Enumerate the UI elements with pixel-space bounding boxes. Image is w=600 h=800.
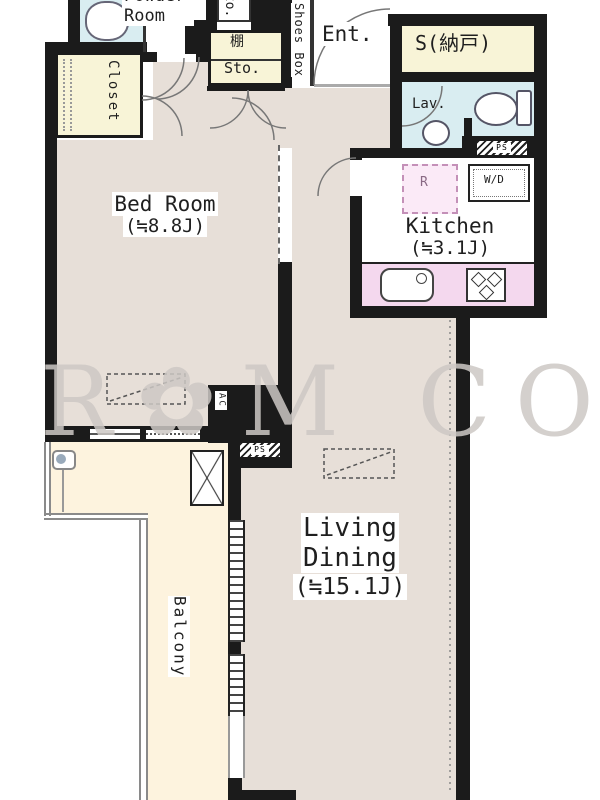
entrance-hall-floor	[230, 88, 390, 148]
washer-dryer-label: W/D	[482, 174, 506, 187]
living-label: Living	[301, 513, 399, 543]
window	[90, 429, 140, 439]
balcony-label: Balcony	[168, 596, 190, 677]
toilet-tank	[516, 90, 532, 126]
wall	[143, 52, 157, 62]
kitchen-label-block: Kitchen (≒3.1J)	[365, 214, 535, 260]
sliding-partition	[278, 145, 280, 264]
washbasin	[422, 120, 450, 146]
wall	[388, 14, 546, 26]
bedroom-label: Bed Room	[112, 192, 217, 216]
balcony-railing	[139, 518, 141, 800]
wall	[398, 72, 534, 82]
entrance-step-line	[314, 84, 390, 87]
powder-room-label: Powder Room	[122, 0, 194, 26]
balcony-railing	[49, 442, 51, 516]
wall	[350, 148, 470, 158]
entrance-label: Ent.	[320, 22, 375, 46]
storage-top-label: Sto.	[219, 0, 238, 17]
balcony-railing	[44, 518, 148, 520]
wall	[456, 312, 470, 800]
stove	[466, 268, 506, 302]
toilet-bowl	[474, 92, 518, 126]
living-floor-upper	[292, 312, 456, 444]
wall	[350, 304, 547, 318]
wall	[45, 426, 235, 442]
storage-label: Sto.	[222, 60, 262, 77]
bedroom-size: (≒8.8J)	[123, 215, 207, 237]
wall	[68, 0, 80, 48]
refrigerator-box	[402, 164, 458, 214]
corridor-floor	[292, 148, 350, 314]
sliding-window	[228, 520, 245, 642]
shelf-label: 棚	[228, 34, 246, 50]
pipe-space-upper-label: PS	[493, 143, 511, 153]
balcony-railing	[146, 518, 148, 800]
floorplan: PS PS AC Powder Room Sto. Closet 棚 St	[0, 0, 600, 800]
balcony-railing	[44, 442, 46, 516]
closet-box	[55, 52, 143, 138]
sliding-window	[228, 654, 245, 716]
shoes-box-label: Shoes Box	[291, 3, 305, 77]
storage-box	[208, 30, 284, 86]
lavatory-label: Lav.	[410, 96, 448, 112]
air-conditioner-label: AC	[215, 391, 227, 410]
wall	[390, 14, 402, 158]
pipe-space-lower-label: PS	[251, 445, 269, 455]
wall	[350, 148, 362, 160]
sliding-window	[228, 716, 245, 778]
wall	[278, 262, 292, 387]
bedroom-label-block: Bed Room (≒8.8J)	[75, 192, 255, 238]
dining-label: Dining	[301, 543, 399, 573]
living-dining-label-block: Living Dining (≒15.1J)	[255, 514, 445, 600]
service-room-label: S(納戸)	[413, 32, 493, 55]
kitchen-label: Kitchen	[404, 214, 497, 238]
balcony-faucet	[52, 450, 76, 470]
kitchen-sink	[380, 268, 434, 302]
pipe-space-upper: PS	[477, 141, 527, 155]
wall	[310, 0, 314, 86]
kitchen-size: (≒3.1J)	[408, 237, 492, 259]
wall	[240, 790, 296, 800]
wall	[207, 86, 285, 91]
pipe-space-lower: PS	[240, 443, 280, 457]
wall	[206, 0, 217, 30]
balcony-railing	[44, 513, 148, 515]
living-floor-main	[241, 440, 456, 800]
closet-label: Closet	[103, 60, 123, 123]
living-dining-size: (≒15.1J)	[293, 574, 408, 600]
wall	[534, 14, 547, 314]
refrigerator-label: R	[418, 176, 430, 191]
wall	[45, 42, 147, 52]
wall	[350, 196, 362, 316]
wall	[251, 0, 287, 30]
ac-outdoor-unit	[190, 450, 224, 506]
window	[146, 430, 200, 439]
wall	[228, 642, 241, 654]
